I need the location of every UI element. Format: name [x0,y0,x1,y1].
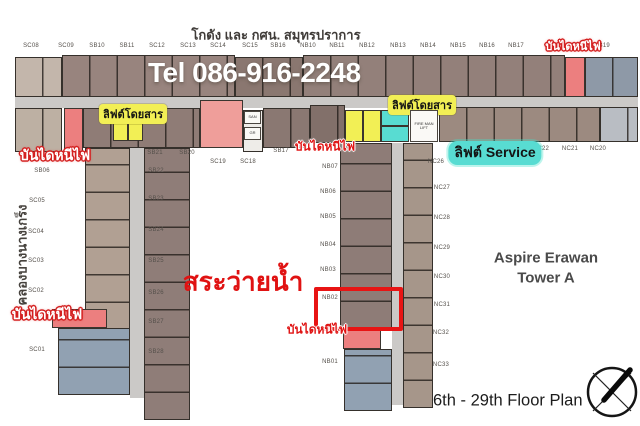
passenger-lift-room [128,122,143,141]
unit-label: SB27 [148,319,163,325]
unit-label: SC03 [28,258,44,264]
utility-room: FIRE MAN LIFT [410,110,438,142]
unit-label: SB26 [148,290,163,296]
building-block [403,143,433,408]
unit-label: NB14 [420,43,436,49]
floor-plan: โกดัง และ กศน. สมุทรปราการ Tel 086-916-2… [0,0,640,426]
unit-label: SC08 [23,43,39,49]
fire-exit-label: บันไดหนีไฟ [287,321,347,340]
unit-label: NB13 [390,43,406,49]
building-block [344,349,392,411]
building-block [15,57,62,97]
unit-label: SC01 [29,347,45,353]
unit-label: SB16 [270,43,285,49]
unit-label: NC21 [562,146,578,152]
unit-label: SC19 [210,159,226,165]
unit-label: SB24 [148,227,163,233]
building-block [585,57,638,97]
unit-label: NB06 [320,189,336,195]
building-block [85,148,130,330]
unit-label: SB10 [89,43,104,49]
passenger-lift-room [113,122,128,141]
unit-label: NC30 [434,274,450,280]
unit-label: NB15 [450,43,466,49]
service-lift-label: ลิฟต์ Service [448,141,541,165]
fire-exit-label: บันไดหนีไฟ [545,37,600,55]
unit-label: NC31 [434,302,450,308]
unit-label: NB07 [322,164,338,170]
unit-label: NB11 [329,43,344,49]
pool-label: สระว่ายน้ำ [183,262,304,303]
building-block [58,328,130,395]
unit-label: NC29 [434,245,450,251]
fire-exit-label: บันไดหนีไฟ [20,145,90,167]
unit-label: SC04 [28,229,44,235]
tower-name-line2: Tower A [494,268,598,288]
fire-escape-room [565,57,585,97]
unit-label: NB17 [508,43,524,49]
phone-number: Tel 086-916-2248 [148,57,361,89]
unit-label: SC12 [149,43,165,49]
fire-escape-room [200,100,243,148]
unit-label: SB28 [148,349,163,355]
tower-name: Aspire Erawan Tower A [494,249,598,288]
unit-label: NB03 [320,267,336,273]
unit-label: NC20 [590,146,606,152]
unit-label: SB11 [119,43,134,49]
unit-label: NC27 [434,185,450,191]
unit-label: SB25 [148,258,163,264]
unit-label: NB04 [320,242,336,248]
unit-label: SB17 [273,148,288,154]
unit-label: SC14 [210,43,226,49]
corridor [392,143,403,405]
unit-label: NC32 [433,330,449,336]
unit-label: SC13 [180,43,196,49]
utility-room: SAN [244,111,261,124]
unit-label: NB05 [320,214,336,220]
unit-label: NB02 [322,295,338,301]
unit-label: SC05 [29,198,45,204]
unit-label: SC18 [240,159,256,165]
unit-label: SC15 [242,43,258,49]
fire-exit-label: บันไดหนีไฟ [295,138,355,157]
unit-label: SC02 [28,288,44,294]
fire-exit-label: บันไดหนีไฟ [12,304,82,326]
unit-label: NB01 [322,359,338,365]
utility-room: GR [244,127,261,140]
floor-range-label: 6th - 29th Floor Plan [433,392,583,411]
unit-label: SB20 [179,150,194,156]
unit-label: NB10 [300,43,316,49]
passenger-lift-label: ลิฟต์โดยสาร [99,104,167,124]
passenger-lift-room [363,110,381,142]
unit-label: SB22 [148,168,163,174]
unit-label: NC26 [428,159,444,165]
building-block [600,107,638,142]
unit-label: NC28 [434,215,450,221]
unit-label: SB21 [147,150,162,156]
building-block [439,107,600,142]
unit-label: SB23 [148,196,163,202]
compass-north-icon [584,364,640,420]
unit-label: SC09 [58,43,74,49]
unit-label: SB06 [34,168,49,174]
tower-name-line1: Aspire Erawan [494,249,598,269]
unit-label: NC33 [433,362,449,368]
service-lift-room [381,126,409,142]
unit-label: NB12 [359,43,375,49]
unit-label: NB16 [479,43,495,49]
corridor [130,148,144,398]
